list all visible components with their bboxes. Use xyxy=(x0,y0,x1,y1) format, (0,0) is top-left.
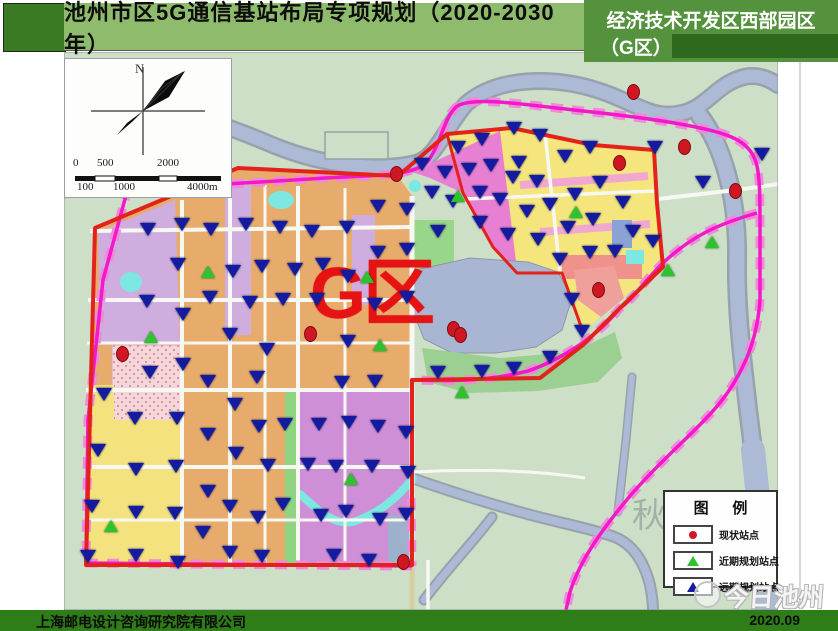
legend-item-existing: 现状站点 xyxy=(673,525,776,544)
scale-label: 4000m xyxy=(187,181,218,193)
district-banner: 经济技术开发区西部园区 （G区） xyxy=(584,0,838,62)
footer-company: 上海邮电设计咨询研究院有限公司 xyxy=(36,612,246,631)
compass-rose xyxy=(65,59,227,193)
region-label: G区 xyxy=(310,258,432,330)
scale-label: 500 xyxy=(97,157,114,169)
scale-label: 1000 xyxy=(113,181,135,193)
watermark-text: 今日池州 xyxy=(723,578,826,614)
green-triangle-icon xyxy=(687,556,699,566)
legend: 图 例 现状站点 近期规划站点 远期规划站点 xyxy=(663,490,778,588)
corner-accent-square xyxy=(3,3,66,52)
watermark: 今日池州 xyxy=(686,578,838,608)
banner-dark-strip xyxy=(672,34,838,58)
countryside-parcel-outline xyxy=(325,132,388,159)
scale-label: 2000 xyxy=(157,157,179,169)
legend-title: 图 例 xyxy=(665,497,776,518)
banner-line2: （G区） xyxy=(600,33,672,60)
river-watermark-label: 秋 xyxy=(632,488,666,537)
scale-label: 100 xyxy=(77,181,94,193)
compass-scale-box: N 0 500 2000 100 1000 4000m xyxy=(64,58,232,198)
red-dot-icon xyxy=(689,531,697,539)
legend-item-label: 近期规划站点 xyxy=(719,553,779,568)
near-term-symbol-box xyxy=(673,551,713,570)
watermark-logo-icon xyxy=(694,581,721,608)
footer-date: 2020.09 xyxy=(749,612,800,628)
legend-item-label: 现状站点 xyxy=(719,527,759,542)
banner-line1: 经济技术开发区西部园区 xyxy=(584,6,838,33)
page-title: 池州市区5G通信基站布局专项规划（2020-2030年） xyxy=(64,0,584,59)
title-bar: 池州市区5G通信基站布局专项规划（2020-2030年） xyxy=(64,3,584,51)
north-label: N xyxy=(135,61,144,77)
legend-item-near-term: 近期规划站点 xyxy=(673,551,776,570)
scale-label: 0 xyxy=(73,157,79,169)
existing-site-symbol-box xyxy=(673,525,713,544)
footer-bar: 上海邮电设计咨询研究院有限公司 2020.09 xyxy=(0,610,838,631)
slide: 秋 G区 N 0 500 2000 100 1000 4000m 图 xyxy=(0,0,838,631)
